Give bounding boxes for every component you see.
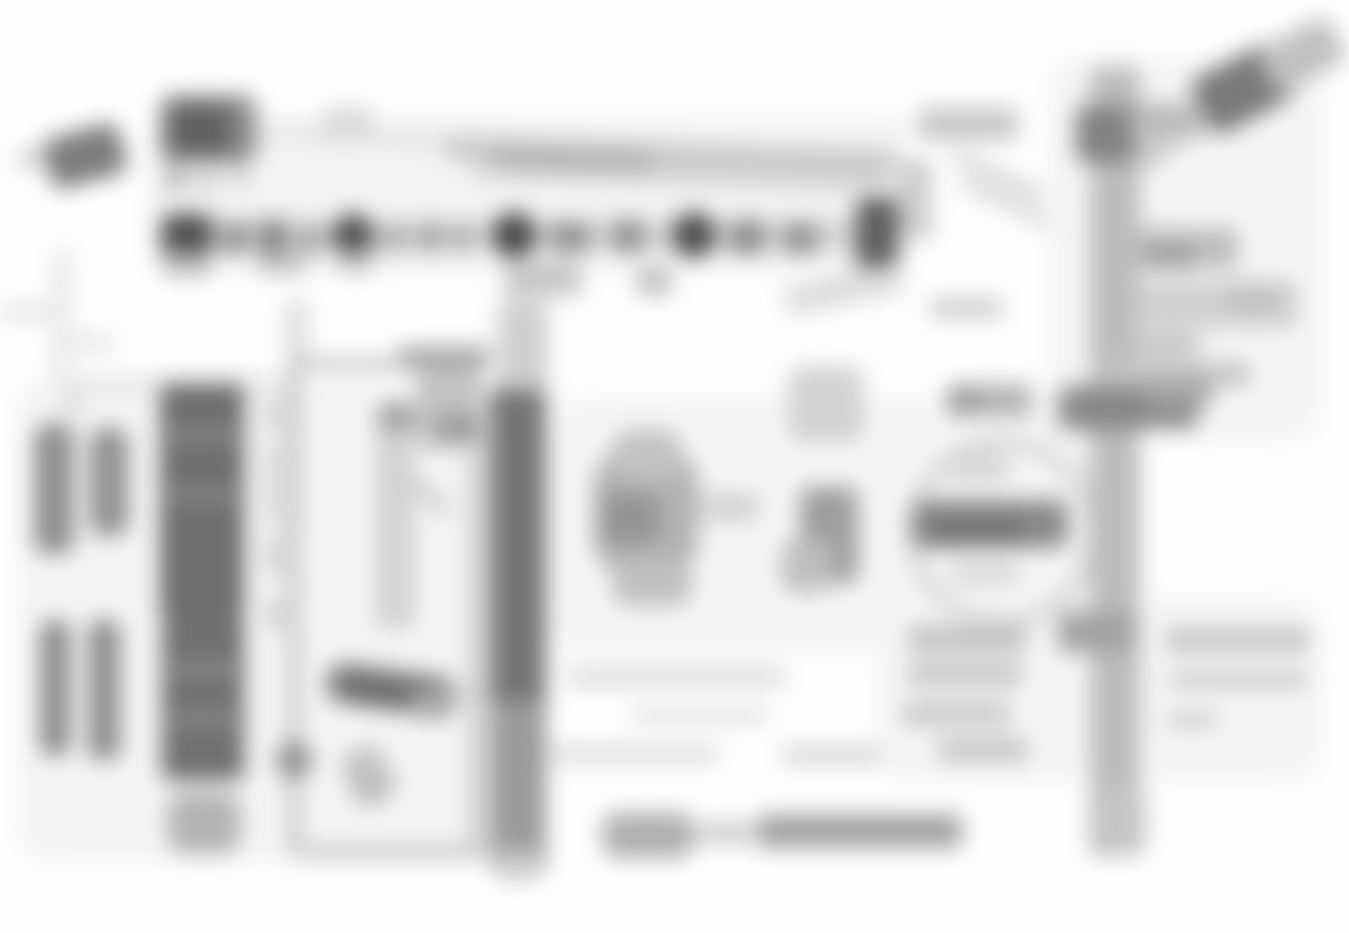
diagram-blob	[1144, 378, 1212, 406]
diagram-blob	[898, 160, 932, 240]
diagram-blob	[166, 168, 186, 190]
diagram-blob	[730, 220, 764, 254]
diagram-blob	[264, 598, 294, 630]
diagram-blob	[41, 121, 130, 191]
diagram-blob	[264, 400, 292, 428]
diagram-blob	[300, 224, 320, 254]
diagram-blob	[612, 430, 682, 480]
diagram-blob	[492, 212, 536, 258]
diagram-blob	[264, 538, 294, 574]
diagram-blob	[496, 850, 540, 880]
diagram-blob	[90, 428, 128, 536]
diagram-blob	[672, 212, 716, 258]
diagram-blob	[34, 424, 74, 554]
diagram-blob	[436, 414, 482, 442]
diagram-blob	[550, 746, 718, 762]
diagram-blob	[928, 516, 1024, 544]
diagram-blob	[162, 620, 244, 780]
diagram-blob	[376, 402, 414, 628]
diagram-blob	[1228, 288, 1278, 312]
diagram-blob	[0, 304, 70, 320]
diagram-blob	[168, 714, 238, 724]
diagram-blob	[918, 108, 1018, 140]
diagram-blob	[264, 440, 284, 526]
diagram-blob	[700, 492, 760, 522]
diagram-blob	[232, 168, 246, 184]
blurred-wiring-diagram	[0, 0, 1349, 933]
diagram-blob	[1168, 672, 1310, 688]
diagram-blob	[550, 222, 590, 252]
diagram-blob	[200, 170, 214, 188]
diagram-blob	[453, 224, 471, 252]
diagram-blob	[490, 388, 546, 718]
diagram-blob	[258, 254, 306, 274]
diagram-blob	[258, 220, 288, 256]
diagram-blob	[504, 262, 582, 296]
diagram-blob	[696, 822, 760, 844]
diagram-blob	[62, 336, 114, 350]
diagram-blob	[168, 792, 240, 854]
diagram-blob	[16, 146, 49, 169]
diagram-blob	[856, 198, 898, 268]
diagram-blob	[160, 384, 244, 620]
diagram-blob	[908, 662, 1022, 686]
diagram-blob	[168, 664, 238, 674]
diagram-blob	[566, 668, 786, 686]
diagram-blob	[902, 702, 1010, 726]
diagram-blob	[166, 430, 238, 440]
diagram-blob	[170, 105, 230, 153]
diagram-blob	[1134, 332, 1200, 358]
diagram-blob	[286, 300, 308, 360]
diagram-blob	[337, 250, 373, 272]
diagram-blob	[300, 846, 484, 858]
diagram-blob	[1166, 628, 1310, 652]
diagram-blob	[60, 396, 84, 414]
diagram-blob	[600, 492, 660, 544]
diagram-blob	[1090, 66, 1140, 856]
diagram-blur-layer	[0, 0, 1349, 933]
diagram-blob	[788, 366, 864, 442]
diagram-blob	[632, 708, 768, 722]
diagram-blob	[386, 224, 404, 252]
diagram-blob	[1058, 612, 1134, 652]
diagram-blob	[1146, 246, 1194, 268]
diagram-blob	[782, 540, 832, 592]
diagram-blob	[420, 222, 440, 252]
diagram-blob	[782, 222, 818, 254]
diagram-blob	[380, 404, 414, 430]
diagram-blob	[498, 300, 548, 390]
diagram-blob	[950, 390, 980, 412]
diagram-blob	[782, 746, 884, 764]
diagram-blob	[163, 252, 211, 276]
diagram-blob	[1076, 106, 1136, 162]
diagram-blob	[946, 452, 1010, 482]
diagram-blob	[88, 620, 120, 760]
diagram-blob	[490, 700, 546, 870]
diagram-blob	[950, 560, 1020, 586]
diagram-blob	[930, 298, 1002, 318]
diagram-blob	[602, 812, 694, 858]
diagram-blob	[398, 346, 490, 368]
diagram-blob	[758, 814, 962, 848]
diagram-blob	[908, 626, 1026, 652]
diagram-blob	[40, 620, 70, 756]
diagram-blob	[612, 220, 644, 252]
diagram-blob	[166, 490, 238, 500]
diagram-blob	[1104, 788, 1146, 854]
diagram-blob	[636, 266, 672, 296]
diagram-blob	[276, 742, 312, 778]
diagram-blob	[612, 560, 692, 606]
diagram-blob	[938, 738, 1028, 762]
diagram-blob	[1166, 712, 1218, 728]
diagram-blob	[222, 222, 248, 254]
